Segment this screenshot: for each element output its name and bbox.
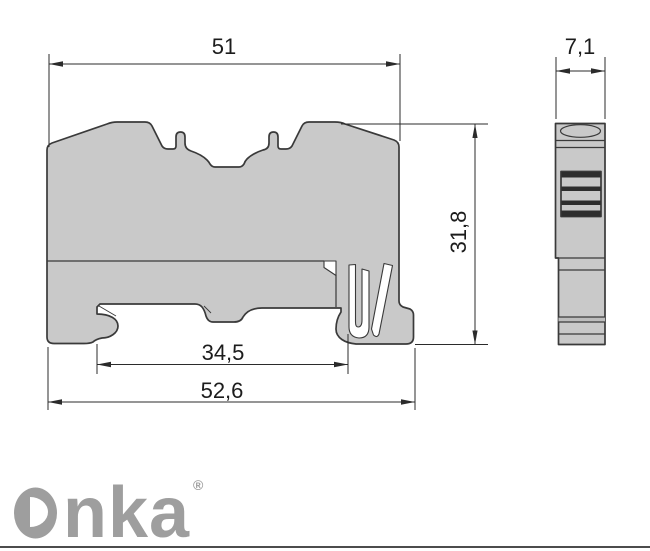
arrow-left [97,362,111,367]
side-lower-band [559,317,606,322]
front-view-outline [47,122,414,344]
dimension-label-front-height: 31,8 [447,182,471,282]
terminal-bar-4 [562,211,601,217]
arrow-right [401,399,415,404]
arrow-bottom [472,331,477,345]
terminal-bar-3 [562,201,601,206]
arrow-left [49,61,63,66]
terminal-bars-frame [561,172,601,217]
registered-trademark-icon: ® [193,477,203,493]
dimension-label-front-width-bottom: 52,6 [170,379,274,402]
terminal-bar-2 [562,187,601,192]
front-view [47,122,414,344]
dimension-side-width [556,57,605,119]
bottom-border-line [0,546,650,548]
terminal-bars [561,172,601,217]
arrow-right [334,362,348,367]
arrow-left [556,68,570,73]
side-view [556,124,606,345]
dimension-label-front-width-top: 51 [174,35,274,58]
arrow-left [48,399,62,404]
logo-letters: nka [63,477,190,549]
drawing-svg [0,0,650,551]
terminal-bar-1 [562,172,601,178]
dimension-label-rail-slot-width: 34,5 [171,341,275,364]
onka-o-logo-mark [14,487,58,539]
side-view-outline [556,124,606,345]
arrow-right [386,61,400,66]
arrow-top [472,124,477,138]
technical-drawing-canvas: 51 7,1 31,8 34,5 52,6 nka ® [0,0,650,551]
dimension-label-side-width: 7,1 [530,35,630,58]
arrow-right [591,68,605,73]
